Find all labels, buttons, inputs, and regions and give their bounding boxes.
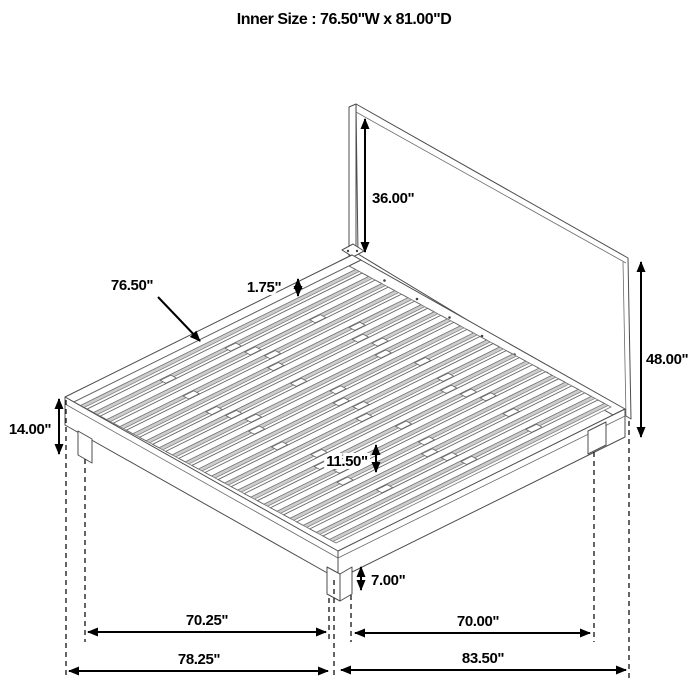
dim-side-overall-depth: 83.50" <box>341 650 626 670</box>
dim-leg-height: 7.00" <box>361 567 406 590</box>
dim-front-overall-width: 78.25" <box>69 651 328 671</box>
dim-headboard-total-height: 48.00" <box>641 262 689 437</box>
back-rail-screw <box>383 279 386 282</box>
bracket-bolt <box>356 250 358 252</box>
dim-label: 70.00" <box>457 613 500 630</box>
dim-front-leg-span: 70.25" <box>88 612 326 632</box>
bracket-bolt <box>347 250 349 252</box>
back-rail-screw <box>448 316 451 319</box>
bed-dimension-diagram: Inner Size : 76.50"W x 81.00"D <box>0 0 700 700</box>
dim-label: 1.75" <box>247 279 282 296</box>
dim-label: 48.00" <box>646 351 689 368</box>
dim-label: 36.00" <box>372 190 415 207</box>
page-title: Inner Size : 76.50"W x 81.00"D <box>237 11 452 28</box>
back-rail-screw <box>416 298 419 301</box>
dim-side-leg-span: 70.00" <box>355 613 590 633</box>
dim-platform-height: 14.00" <box>9 399 59 454</box>
dim-label: 14.00" <box>9 421 52 438</box>
dim-label: 7.00" <box>371 572 406 589</box>
leader-arrow <box>158 297 200 341</box>
diagram-canvas: Inner Size : 76.50"W x 81.00"D <box>0 0 700 700</box>
headboard-side-edge <box>349 104 356 257</box>
dim-label: 76.50" <box>111 277 154 294</box>
dim-label: 78.25" <box>178 651 221 668</box>
dim-label: 83.50" <box>462 650 505 667</box>
dim-label: 11.50" <box>326 453 368 470</box>
dim-slat-length: 76.50" <box>111 277 200 341</box>
dim-label: 70.25" <box>186 612 229 629</box>
